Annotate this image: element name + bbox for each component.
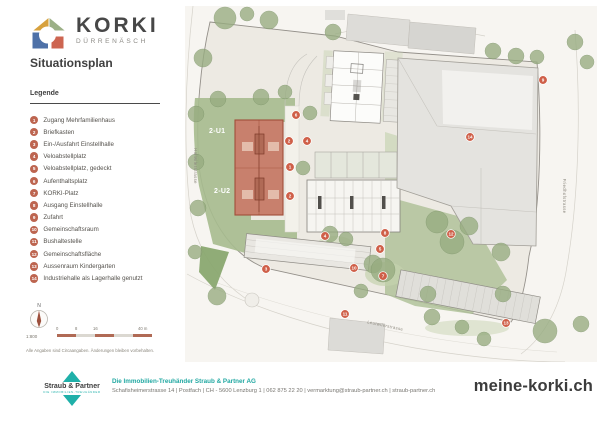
- svg-text:12: 12: [448, 232, 454, 237]
- korki-house-icon: [30, 15, 68, 53]
- main-building: [235, 120, 283, 215]
- logo-subtitle: DÜRRENÄSCH: [76, 38, 159, 45]
- legend-item: 13Aussenraum Kindergarten: [30, 260, 190, 272]
- legend-number-badge: 12: [30, 250, 38, 258]
- legend-label: Zufahrt: [43, 214, 63, 221]
- map-marker-3: 3: [262, 265, 271, 274]
- situationsplan-page: { "header": { "logo_title": "KORKI", "lo…: [0, 0, 600, 424]
- svg-text:6: 6: [295, 113, 298, 118]
- legend-number-badge: 10: [30, 226, 38, 234]
- building-label: 2-U1: [209, 128, 225, 135]
- scale-tick: 16: [93, 326, 98, 331]
- street-label: Friedhofstrasse: [562, 179, 567, 214]
- legend-number-badge: 7: [30, 189, 38, 197]
- legend-label: Gemeinschaftsraum: [43, 226, 98, 233]
- legend-number-badge: 13: [30, 262, 38, 270]
- legend-number-badge: 8: [30, 201, 38, 209]
- legend-item: 4Veloabstellplatz: [30, 151, 190, 163]
- map-marker-2: 2: [286, 192, 295, 201]
- svg-text:13: 13: [503, 321, 509, 326]
- legend-label: Ausgang Einstellhalle: [43, 202, 102, 209]
- svg-text:1: 1: [289, 165, 292, 170]
- logo-title: KORKI: [76, 15, 159, 37]
- map-marker-14: 14: [466, 133, 475, 142]
- legend-item: 2Briefkasten: [30, 126, 190, 138]
- legend-label: Ein-/Ausfahrt Einstellhalle: [43, 141, 114, 148]
- scale-ratio: 1:800: [26, 334, 37, 339]
- legend-item: 10Gemeinschaftsraum: [30, 224, 190, 236]
- legend-label: KORKI-Platz: [43, 190, 78, 197]
- legend-item: 1Zugang Mehrfamilienhaus: [30, 114, 190, 126]
- legend-item: 7KORKI-Platz: [30, 187, 190, 199]
- legend-number-badge: 5: [30, 165, 38, 173]
- triangle-down-icon: [63, 395, 81, 406]
- svg-text:9: 9: [542, 78, 545, 83]
- legend-item: 5Veloabstellplatz, gedeckt: [30, 163, 190, 175]
- legend-item: 8Ausgang Einstellhalle: [30, 199, 190, 211]
- map-marker-8: 8: [381, 229, 390, 238]
- map-marker-4: 4: [303, 137, 312, 146]
- svg-text:2: 2: [288, 139, 291, 144]
- footer-address: Schafisheimerstrasse 14 | Postfach | CH …: [112, 388, 435, 394]
- site-plan-map: HallwilerstrasseFriedhofstrasseLeutwiler…: [185, 6, 597, 362]
- legend-item: 11Bushaltestelle: [30, 236, 190, 248]
- svg-text:4: 4: [306, 139, 309, 144]
- legend-number-badge: 14: [30, 274, 38, 282]
- legend-label: Gemeinschaftsfläche: [43, 251, 101, 258]
- footer-company: Die Immobilien-Treuhänder Straub & Partn…: [112, 378, 256, 385]
- scale-segments: [57, 334, 152, 337]
- map-marker-2: 2: [285, 137, 294, 146]
- scale-tick: 40 m: [138, 326, 147, 331]
- street-label: Hallwilerstrasse: [193, 148, 198, 184]
- map-marker-1: 1: [286, 163, 295, 172]
- scale-bar: 1:800 081640 m: [26, 326, 176, 348]
- website-url: meine-korki.ch: [448, 377, 593, 396]
- svg-text:14: 14: [467, 135, 473, 140]
- legend-number-badge: 11: [30, 238, 38, 246]
- legend-number-badge: 2: [30, 128, 38, 136]
- legend-divider: [30, 103, 160, 104]
- legend-title: Legende: [30, 90, 59, 97]
- map-marker-6: 6: [292, 111, 301, 120]
- map-marker-7: 7: [379, 272, 388, 281]
- svg-text:10: 10: [351, 266, 357, 271]
- svg-text:3: 3: [265, 267, 268, 272]
- svg-text:5: 5: [379, 247, 382, 252]
- legend-number-badge: 4: [30, 152, 38, 160]
- map-marker-5: 5: [376, 245, 385, 254]
- disclaimer-note: Alle Angaben sind Circaangaben. Änderung…: [26, 348, 154, 353]
- straub-partner-name: Straub & Partner: [44, 383, 100, 390]
- legend-label: Veloabstellplatz, gedeckt: [43, 165, 111, 172]
- map-marker-9: 9: [539, 76, 548, 85]
- legend-label: Zugang Mehrfamilienhaus: [43, 117, 115, 124]
- legend-label: Veloabstellplatz: [43, 153, 86, 160]
- svg-text:7: 7: [382, 274, 385, 279]
- legend-label: Bushaltestelle: [43, 238, 82, 245]
- legend-items: 1Zugang Mehrfamilienhaus2Briefkasten3Ein…: [30, 114, 190, 285]
- legend-item: 9Zufahrt: [30, 212, 190, 224]
- korki-logo: KORKI DÜRRENÄSCH: [30, 15, 159, 53]
- svg-text:8: 8: [384, 231, 387, 236]
- map-marker-10: 10: [350, 264, 359, 273]
- legend-label: Aufenthaltsplatz: [43, 178, 87, 185]
- legend-item: 12Gemeinschaftsfläche: [30, 248, 190, 260]
- map-marker-12: 12: [447, 230, 456, 239]
- straub-partner-logo: Straub & Partner DIE IMMOBILIEN-TREUHÄND…: [26, 371, 118, 406]
- map-marker-11: 11: [341, 310, 350, 319]
- existing-building: [320, 48, 409, 124]
- legend-item: 14Industriehalle als Lagerhalle genutzt: [30, 272, 190, 284]
- map-marker-13: 13: [502, 319, 511, 328]
- legend-item: 6Aufenthaltsplatz: [30, 175, 190, 187]
- legend-label: Industriehalle als Lagerhalle genutzt: [43, 275, 142, 282]
- legend-item: 3Ein-/Ausfahrt Einstellhalle: [30, 138, 190, 150]
- legend-label: Aussenraum Kindergarten: [43, 263, 115, 270]
- map-marker-4: 4: [321, 232, 330, 241]
- legend-number-badge: 9: [30, 213, 38, 221]
- scale-tick: 8: [75, 326, 77, 331]
- straub-partner-tagline: DIE IMMOBILIEN-TREUHÄNDER: [43, 390, 100, 394]
- carport: [307, 152, 400, 232]
- building-label: 2-U2: [214, 188, 230, 195]
- legend-label: Briefkasten: [43, 129, 74, 136]
- legend-number-badge: 6: [30, 177, 38, 185]
- triangle-up-icon: [63, 371, 81, 382]
- scale-tick: 0: [56, 326, 58, 331]
- legend-number-badge: 1: [30, 116, 38, 124]
- compass-n-label: N: [37, 303, 41, 309]
- legend-number-badge: 3: [30, 140, 38, 148]
- svg-text:4: 4: [324, 234, 327, 239]
- svg-text:11: 11: [343, 312, 348, 317]
- page-title: Situationsplan: [30, 56, 113, 70]
- svg-text:2: 2: [289, 194, 292, 199]
